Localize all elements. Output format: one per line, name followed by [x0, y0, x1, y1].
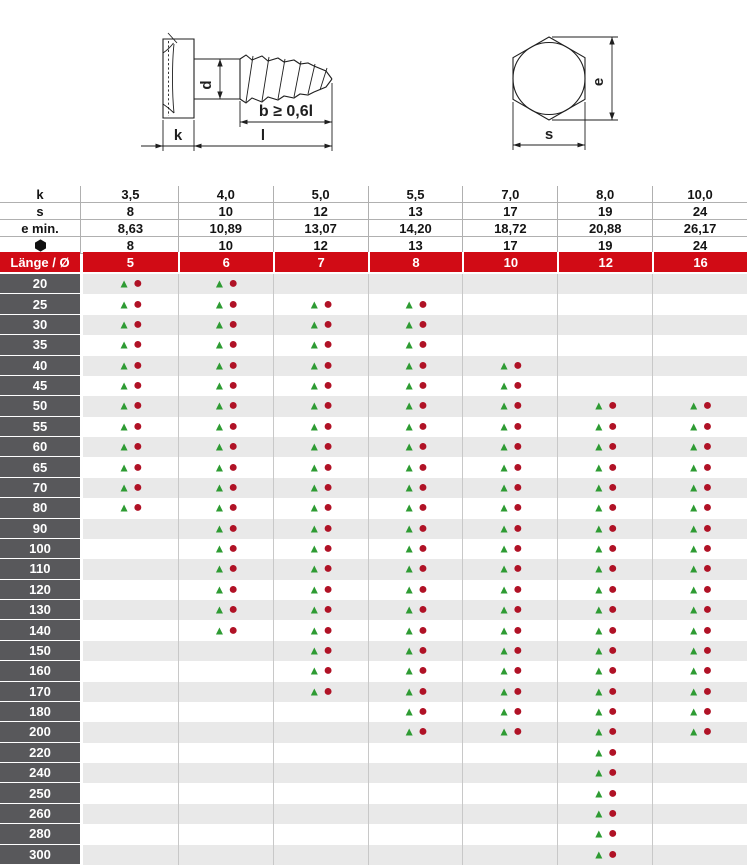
spec-value: 3,5: [83, 186, 178, 202]
availability-cell-45-6: ▲●: [178, 376, 273, 396]
triangle-icon: ▲: [213, 420, 225, 432]
availability-cell-45-7: ▲●: [273, 376, 368, 396]
availability-cell-120-16: ▲●: [652, 580, 747, 600]
circle-icon: ●: [513, 521, 523, 537]
availability-cell-110-6: ▲●: [178, 559, 273, 579]
circle-icon: ●: [608, 623, 618, 639]
availability-cell-70-8: ▲●: [368, 478, 463, 498]
length-row-90: 90▲●▲●▲●▲●▲●▲●: [0, 519, 747, 539]
spec-row-label: [0, 237, 80, 253]
availability-cell-40-5: ▲●: [83, 356, 178, 376]
spec-value: 19: [557, 203, 652, 219]
triangle-icon: ▲: [118, 502, 130, 514]
availability-marker: ▲●: [308, 419, 333, 435]
availability-marker: ▲●: [118, 317, 143, 333]
circle-icon: ●: [513, 358, 523, 374]
circle-icon: ●: [513, 704, 523, 720]
circle-icon: ●: [703, 602, 713, 618]
triangle-icon: ▲: [308, 543, 320, 555]
circle-icon: ●: [418, 704, 428, 720]
triangle-icon: ▲: [593, 604, 605, 616]
triangle-icon: ▲: [593, 543, 605, 555]
triangle-icon: ▲: [403, 318, 415, 330]
circle-icon: ●: [323, 378, 333, 394]
circle-icon: ●: [418, 419, 428, 435]
triangle-icon: ▲: [498, 665, 510, 677]
circle-icon: ●: [133, 317, 143, 333]
availability-cell-50-12: ▲●: [557, 396, 652, 416]
availability-cell-90-10: ▲●: [462, 519, 557, 539]
spec-row-label: s: [0, 203, 80, 219]
availability-marker: ▲●: [403, 337, 428, 353]
availability-cell-80-7: ▲●: [273, 498, 368, 518]
spec-value: 8,63: [83, 220, 178, 236]
availability-cell-220-5: [83, 743, 178, 763]
availability-cell-100-12: ▲●: [557, 539, 652, 559]
availability-marker: ▲●: [688, 419, 713, 435]
dim-label-l: l: [261, 127, 265, 144]
triangle-icon: ▲: [593, 767, 605, 779]
availability-cell-60-7: ▲●: [273, 437, 368, 457]
availability-marker: ▲●: [308, 378, 333, 394]
triangle-icon: ▲: [118, 339, 130, 351]
availability-cell-250-10: [462, 783, 557, 803]
triangle-icon: ▲: [688, 604, 700, 616]
availability-cell-200-16: ▲●: [652, 722, 747, 742]
circle-icon: ●: [608, 643, 618, 659]
circle-icon: ●: [703, 500, 713, 516]
availability-cell-25-16: [652, 294, 747, 314]
availability-marker: ▲●: [213, 317, 238, 333]
triangle-icon: ▲: [593, 624, 605, 636]
triangle-icon: ▲: [403, 502, 415, 514]
availability-cell-260-7: [273, 804, 368, 824]
availability-cell-120-12: ▲●: [557, 580, 652, 600]
availability-cell-40-8: ▲●: [368, 356, 463, 376]
availability-cell-60-6: ▲●: [178, 437, 273, 457]
availability-marker: ▲●: [403, 500, 428, 516]
triangle-icon: ▲: [403, 359, 415, 371]
triangle-icon: ▲: [498, 644, 510, 656]
length-label: 200: [0, 722, 80, 742]
availability-marker: ▲●: [688, 643, 713, 659]
circle-icon: ●: [608, 765, 618, 781]
triangle-icon: ▲: [593, 787, 605, 799]
availability-cell-180-10: ▲●: [462, 702, 557, 722]
availability-cell-70-7: ▲●: [273, 478, 368, 498]
length-row-110: 110▲●▲●▲●▲●▲●▲●: [0, 559, 747, 579]
availability-cell-25-7: ▲●: [273, 294, 368, 314]
availability-cell-110-8: ▲●: [368, 559, 463, 579]
triangle-icon: ▲: [403, 685, 415, 697]
circle-icon: ●: [608, 582, 618, 598]
availability-marker: ▲●: [498, 541, 523, 557]
triangle-icon: ▲: [688, 400, 700, 412]
availability-cell-300-7: [273, 845, 368, 865]
availability-marker: ▲●: [308, 602, 333, 618]
availability-cell-40-10: ▲●: [462, 356, 557, 376]
availability-cell-200-10: ▲●: [462, 722, 557, 742]
circle-icon: ●: [323, 500, 333, 516]
availability-cell-160-16: ▲●: [652, 661, 747, 681]
availability-cell-80-12: ▲●: [557, 498, 652, 518]
availability-cell-220-12: ▲●: [557, 743, 652, 763]
availability-marker: ▲●: [118, 337, 143, 353]
availability-marker: ▲●: [498, 582, 523, 598]
triangle-icon: ▲: [593, 461, 605, 473]
triangle-icon: ▲: [213, 604, 225, 616]
triangle-icon: ▲: [308, 420, 320, 432]
length-row-30: 30▲●▲●▲●▲●: [0, 315, 747, 335]
spec-value: 12: [273, 203, 368, 219]
availability-cell-150-16: ▲●: [652, 641, 747, 661]
circle-icon: ●: [133, 439, 143, 455]
availability-marker: ▲●: [308, 561, 333, 577]
availability-cell-55-10: ▲●: [462, 417, 557, 437]
triangle-icon: ▲: [308, 298, 320, 310]
triangle-icon: ▲: [118, 359, 130, 371]
circle-icon: ●: [513, 724, 523, 740]
availability-marker: ▲●: [688, 439, 713, 455]
length-label: 90: [0, 519, 80, 539]
circle-icon: ●: [228, 500, 238, 516]
circle-icon: ●: [323, 663, 333, 679]
diameter-header-7: 7: [273, 252, 368, 272]
availability-marker: ▲●: [593, 460, 618, 476]
circle-icon: ●: [513, 398, 523, 414]
availability-cell-250-7: [273, 783, 368, 803]
triangle-icon: ▲: [593, 522, 605, 534]
length-row-80: 80▲●▲●▲●▲●▲●▲●▲●: [0, 498, 747, 518]
availability-marker: ▲●: [308, 663, 333, 679]
availability-cell-80-10: ▲●: [462, 498, 557, 518]
availability-marker: ▲●: [498, 704, 523, 720]
availability-cell-90-5: [83, 519, 178, 539]
triangle-icon: ▲: [688, 502, 700, 514]
availability-marker: ▲●: [498, 398, 523, 414]
availability-cell-20-7: [273, 274, 368, 294]
availability-cell-65-5: ▲●: [83, 457, 178, 477]
availability-cell-120-10: ▲●: [462, 580, 557, 600]
availability-cell-300-16: [652, 845, 747, 865]
availability-cell-220-8: [368, 743, 463, 763]
availability-marker: ▲●: [498, 500, 523, 516]
triangle-icon: ▲: [308, 359, 320, 371]
dim-label-b: b ≥ 0,6l: [259, 103, 313, 120]
availability-cell-30-5: ▲●: [83, 315, 178, 335]
availability-cell-65-16: ▲●: [652, 457, 747, 477]
diameter-header-12: 12: [557, 252, 652, 272]
availability-marker: ▲●: [403, 460, 428, 476]
triangle-icon: ▲: [593, 502, 605, 514]
length-label: 130: [0, 600, 80, 620]
availability-cell-55-6: ▲●: [178, 417, 273, 437]
triangle-icon: ▲: [213, 502, 225, 514]
circle-icon: ●: [133, 378, 143, 394]
circle-icon: ●: [703, 643, 713, 659]
availability-marker: ▲●: [118, 358, 143, 374]
spec-value: 24: [652, 237, 747, 253]
triangle-icon: ▲: [308, 400, 320, 412]
availability-cell-140-7: ▲●: [273, 620, 368, 640]
availability-cell-260-5: [83, 804, 178, 824]
availability-cell-160-7: ▲●: [273, 661, 368, 681]
availability-cell-170-6: [178, 682, 273, 702]
length-label: 250: [0, 783, 80, 803]
triangle-icon: ▲: [213, 298, 225, 310]
availability-cell-20-5: ▲●: [83, 274, 178, 294]
length-label: 80: [0, 498, 80, 518]
circle-icon: ●: [323, 561, 333, 577]
circle-icon: ●: [323, 460, 333, 476]
circle-icon: ●: [323, 398, 333, 414]
availability-cell-50-6: ▲●: [178, 396, 273, 416]
spec-row-label: e min.: [0, 220, 80, 236]
spec-value: 13: [368, 237, 463, 253]
spec-row-k: k3,54,05,05,57,08,010,0: [0, 186, 747, 203]
triangle-icon: ▲: [308, 441, 320, 453]
triangle-icon: ▲: [308, 563, 320, 575]
availability-marker: ▲●: [403, 704, 428, 720]
availability-cell-100-8: ▲●: [368, 539, 463, 559]
triangle-icon: ▲: [593, 644, 605, 656]
availability-marker: ▲●: [308, 337, 333, 353]
circle-icon: ●: [418, 297, 428, 313]
triangle-icon: ▲: [213, 624, 225, 636]
circle-icon: ●: [608, 704, 618, 720]
availability-cell-65-10: ▲●: [462, 457, 557, 477]
length-label: 240: [0, 763, 80, 783]
triangle-icon: ▲: [593, 685, 605, 697]
availability-cell-30-8: ▲●: [368, 315, 463, 335]
availability-marker: ▲●: [403, 317, 428, 333]
circle-icon: ●: [418, 317, 428, 333]
availability-marker: ▲●: [593, 541, 618, 557]
dim-label-k: k: [174, 127, 183, 144]
availability-marker: ▲●: [213, 276, 238, 292]
size-header-bar: Länge / Ø5678101216: [0, 252, 747, 272]
availability-cell-180-7: [273, 702, 368, 722]
availability-marker: ▲●: [213, 398, 238, 414]
availability-cell-150-12: ▲●: [557, 641, 652, 661]
triangle-icon: ▲: [688, 665, 700, 677]
availability-cell-90-16: ▲●: [652, 519, 747, 539]
triangle-icon: ▲: [498, 706, 510, 718]
circle-icon: ●: [608, 419, 618, 435]
availability-marker: ▲●: [403, 521, 428, 537]
availability-marker: ▲●: [403, 541, 428, 557]
triangle-icon: ▲: [403, 481, 415, 493]
availability-marker: ▲●: [403, 724, 428, 740]
availability-cell-130-5: [83, 600, 178, 620]
circle-icon: ●: [133, 297, 143, 313]
circle-icon: ●: [323, 297, 333, 313]
circle-icon: ●: [228, 276, 238, 292]
triangle-icon: ▲: [498, 400, 510, 412]
availability-cell-20-16: [652, 274, 747, 294]
circle-icon: ●: [703, 521, 713, 537]
spec-value: 13: [368, 203, 463, 219]
circle-icon: ●: [608, 561, 618, 577]
availability-marker: ▲●: [593, 663, 618, 679]
availability-marker: ▲●: [403, 602, 428, 618]
availability-marker: ▲●: [308, 480, 333, 496]
circle-icon: ●: [703, 419, 713, 435]
availability-cell-150-7: ▲●: [273, 641, 368, 661]
length-label: 45: [0, 376, 80, 396]
circle-icon: ●: [133, 419, 143, 435]
availability-marker: ▲●: [593, 786, 618, 802]
availability-cell-55-5: ▲●: [83, 417, 178, 437]
availability-cell-260-8: [368, 804, 463, 824]
availability-cell-20-8: [368, 274, 463, 294]
circle-icon: ●: [228, 521, 238, 537]
availability-marker: ▲●: [403, 643, 428, 659]
availability-marker: ▲●: [213, 500, 238, 516]
availability-cell-70-16: ▲●: [652, 478, 747, 498]
circle-icon: ●: [703, 439, 713, 455]
length-row-70: 70▲●▲●▲●▲●▲●▲●▲●: [0, 478, 747, 498]
length-row-280: 280▲●: [0, 824, 747, 844]
spec-value: 12: [273, 237, 368, 253]
availability-marker: ▲●: [593, 847, 618, 863]
triangle-icon: ▲: [688, 441, 700, 453]
triangle-icon: ▲: [403, 298, 415, 310]
circle-icon: ●: [703, 480, 713, 496]
length-label: 260: [0, 804, 80, 824]
availability-marker: ▲●: [308, 643, 333, 659]
circle-icon: ●: [703, 541, 713, 557]
availability-marker: ▲●: [118, 460, 143, 476]
availability-cell-140-5: [83, 620, 178, 640]
circle-icon: ●: [228, 561, 238, 577]
availability-cell-250-8: [368, 783, 463, 803]
triangle-icon: ▲: [593, 807, 605, 819]
circle-icon: ●: [323, 623, 333, 639]
availability-marker: ▲●: [213, 561, 238, 577]
spec-value: 24: [652, 203, 747, 219]
triangle-icon: ▲: [403, 543, 415, 555]
length-label: 180: [0, 702, 80, 722]
availability-marker: ▲●: [593, 623, 618, 639]
technical-drawings: d b ≥ 0,6l k l: [0, 0, 747, 185]
triangle-icon: ▲: [308, 502, 320, 514]
availability-marker: ▲●: [118, 419, 143, 435]
availability-cell-25-6: ▲●: [178, 294, 273, 314]
circle-icon: ●: [228, 623, 238, 639]
circle-icon: ●: [703, 582, 713, 598]
availability-cell-200-5: [83, 722, 178, 742]
circle-icon: ●: [228, 378, 238, 394]
availability-marker: ▲●: [213, 419, 238, 435]
triangle-icon: ▲: [498, 441, 510, 453]
availability-marker: ▲●: [498, 643, 523, 659]
length-row-220: 220▲●: [0, 743, 747, 763]
availability-marker: ▲●: [498, 439, 523, 455]
corner-label-laenge-durchmesser: Länge / Ø: [0, 252, 80, 272]
availability-cell-30-6: ▲●: [178, 315, 273, 335]
circle-icon: ●: [703, 724, 713, 740]
availability-marker: ▲●: [593, 643, 618, 659]
triangle-icon: ▲: [403, 706, 415, 718]
availability-cell-240-12: ▲●: [557, 763, 652, 783]
availability-cell-130-12: ▲●: [557, 600, 652, 620]
availability-cell-80-16: ▲●: [652, 498, 747, 518]
availability-marker: ▲●: [593, 419, 618, 435]
availability-cell-240-6: [178, 763, 273, 783]
circle-icon: ●: [418, 623, 428, 639]
availability-cell-100-5: [83, 539, 178, 559]
spec-row-s: s8101213171924: [0, 203, 747, 220]
availability-marker: ▲●: [498, 724, 523, 740]
circle-icon: ●: [418, 724, 428, 740]
availability-cell-25-5: ▲●: [83, 294, 178, 314]
length-row-40: 40▲●▲●▲●▲●▲●: [0, 356, 747, 376]
availability-marker: ▲●: [213, 541, 238, 557]
circle-icon: ●: [703, 561, 713, 577]
availability-cell-90-8: ▲●: [368, 519, 463, 539]
triangle-icon: ▲: [308, 339, 320, 351]
availability-cell-120-5: [83, 580, 178, 600]
availability-cell-35-16: [652, 335, 747, 355]
availability-marker: ▲●: [593, 602, 618, 618]
length-row-130: 130▲●▲●▲●▲●▲●▲●: [0, 600, 747, 620]
circle-icon: ●: [133, 337, 143, 353]
availability-cell-300-6: [178, 845, 273, 865]
availability-cell-45-16: [652, 376, 747, 396]
availability-marker: ▲●: [308, 317, 333, 333]
triangle-icon: ▲: [118, 461, 130, 473]
availability-marker: ▲●: [213, 623, 238, 639]
availability-marker: ▲●: [688, 398, 713, 414]
length-label: 160: [0, 661, 80, 681]
availability-cell-65-8: ▲●: [368, 457, 463, 477]
circle-icon: ●: [418, 663, 428, 679]
circle-icon: ●: [513, 582, 523, 598]
triangle-icon: ▲: [213, 461, 225, 473]
availability-cell-90-7: ▲●: [273, 519, 368, 539]
spec-row-e min.: e min.8,6310,8913,0714,2018,7220,8826,17: [0, 220, 747, 237]
availability-marker: ▲●: [403, 582, 428, 598]
availability-cell-140-16: ▲●: [652, 620, 747, 640]
availability-marker: ▲●: [213, 297, 238, 313]
circle-icon: ●: [608, 826, 618, 842]
availability-marker: ▲●: [593, 500, 618, 516]
availability-cell-180-5: [83, 702, 178, 722]
availability-cell-25-10: [462, 294, 557, 314]
circle-icon: ●: [703, 398, 713, 414]
triangle-icon: ▲: [688, 420, 700, 432]
availability-marker: ▲●: [688, 561, 713, 577]
length-label: 65: [0, 457, 80, 477]
triangle-icon: ▲: [498, 481, 510, 493]
availability-marker: ▲●: [213, 337, 238, 353]
circle-icon: ●: [513, 602, 523, 618]
circle-icon: ●: [323, 541, 333, 557]
availability-marker: ▲●: [593, 724, 618, 740]
availability-marker: ▲●: [308, 541, 333, 557]
availability-marker: ▲●: [593, 582, 618, 598]
triangle-icon: ▲: [688, 461, 700, 473]
length-row-120: 120▲●▲●▲●▲●▲●▲●: [0, 580, 747, 600]
circle-icon: ●: [323, 684, 333, 700]
availability-cell-50-7: ▲●: [273, 396, 368, 416]
availability-cell-260-12: ▲●: [557, 804, 652, 824]
availability-marker: ▲●: [118, 378, 143, 394]
circle-icon: ●: [323, 419, 333, 435]
diameter-header-16: 16: [652, 252, 747, 272]
availability-cell-45-5: ▲●: [83, 376, 178, 396]
